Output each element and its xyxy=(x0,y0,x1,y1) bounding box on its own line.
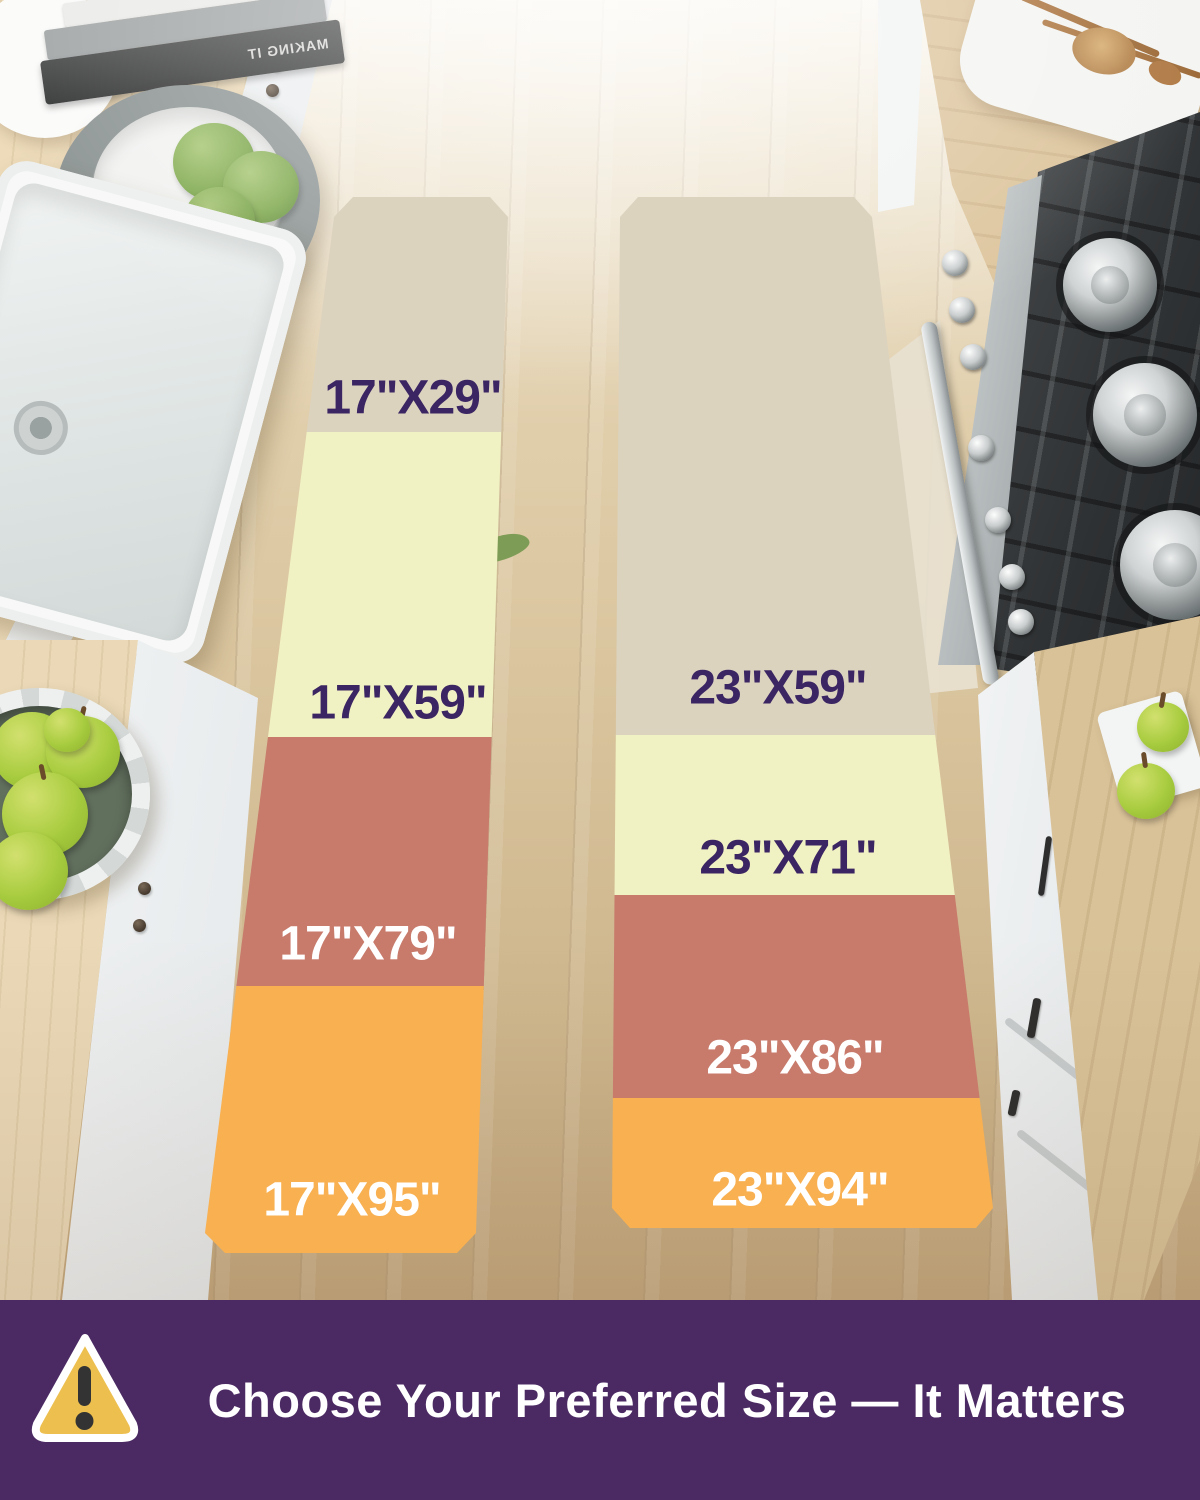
stove-knob xyxy=(968,435,994,461)
cabinet-knob xyxy=(138,882,151,895)
size-label: 17"X59" xyxy=(309,676,486,731)
burner xyxy=(1093,363,1197,467)
kitchen-scene: MAKING IT xyxy=(0,0,1200,1500)
cabinet-knob xyxy=(133,919,146,932)
burner xyxy=(1120,510,1200,620)
apple xyxy=(44,708,90,752)
size-label: 17"X95" xyxy=(263,1173,440,1228)
apple xyxy=(1137,702,1189,752)
warning-triangle-icon xyxy=(24,1328,146,1452)
size-label: 23"X59" xyxy=(689,661,866,716)
size-warning-banner: Choose Your Preferred Size — It Matters xyxy=(0,1300,1200,1500)
size-label: 23"X71" xyxy=(699,831,876,886)
burner xyxy=(1063,238,1157,332)
size-label: 23"X86" xyxy=(706,1031,883,1086)
stove-knob xyxy=(942,250,968,276)
size-label: 17"X29" xyxy=(324,371,501,426)
stove-knob xyxy=(999,564,1025,590)
stove-knob xyxy=(1008,609,1034,635)
banner-text: Choose Your Preferred Size — It Matters xyxy=(150,1300,1184,1500)
size-label: 23"X94" xyxy=(711,1163,888,1218)
book-title: MAKING IT xyxy=(246,35,330,62)
stove-knob xyxy=(985,507,1011,533)
stove-knob xyxy=(960,344,986,370)
stove-knob xyxy=(949,297,975,323)
apple xyxy=(1117,763,1175,819)
size-label: 17"X79" xyxy=(279,917,456,972)
